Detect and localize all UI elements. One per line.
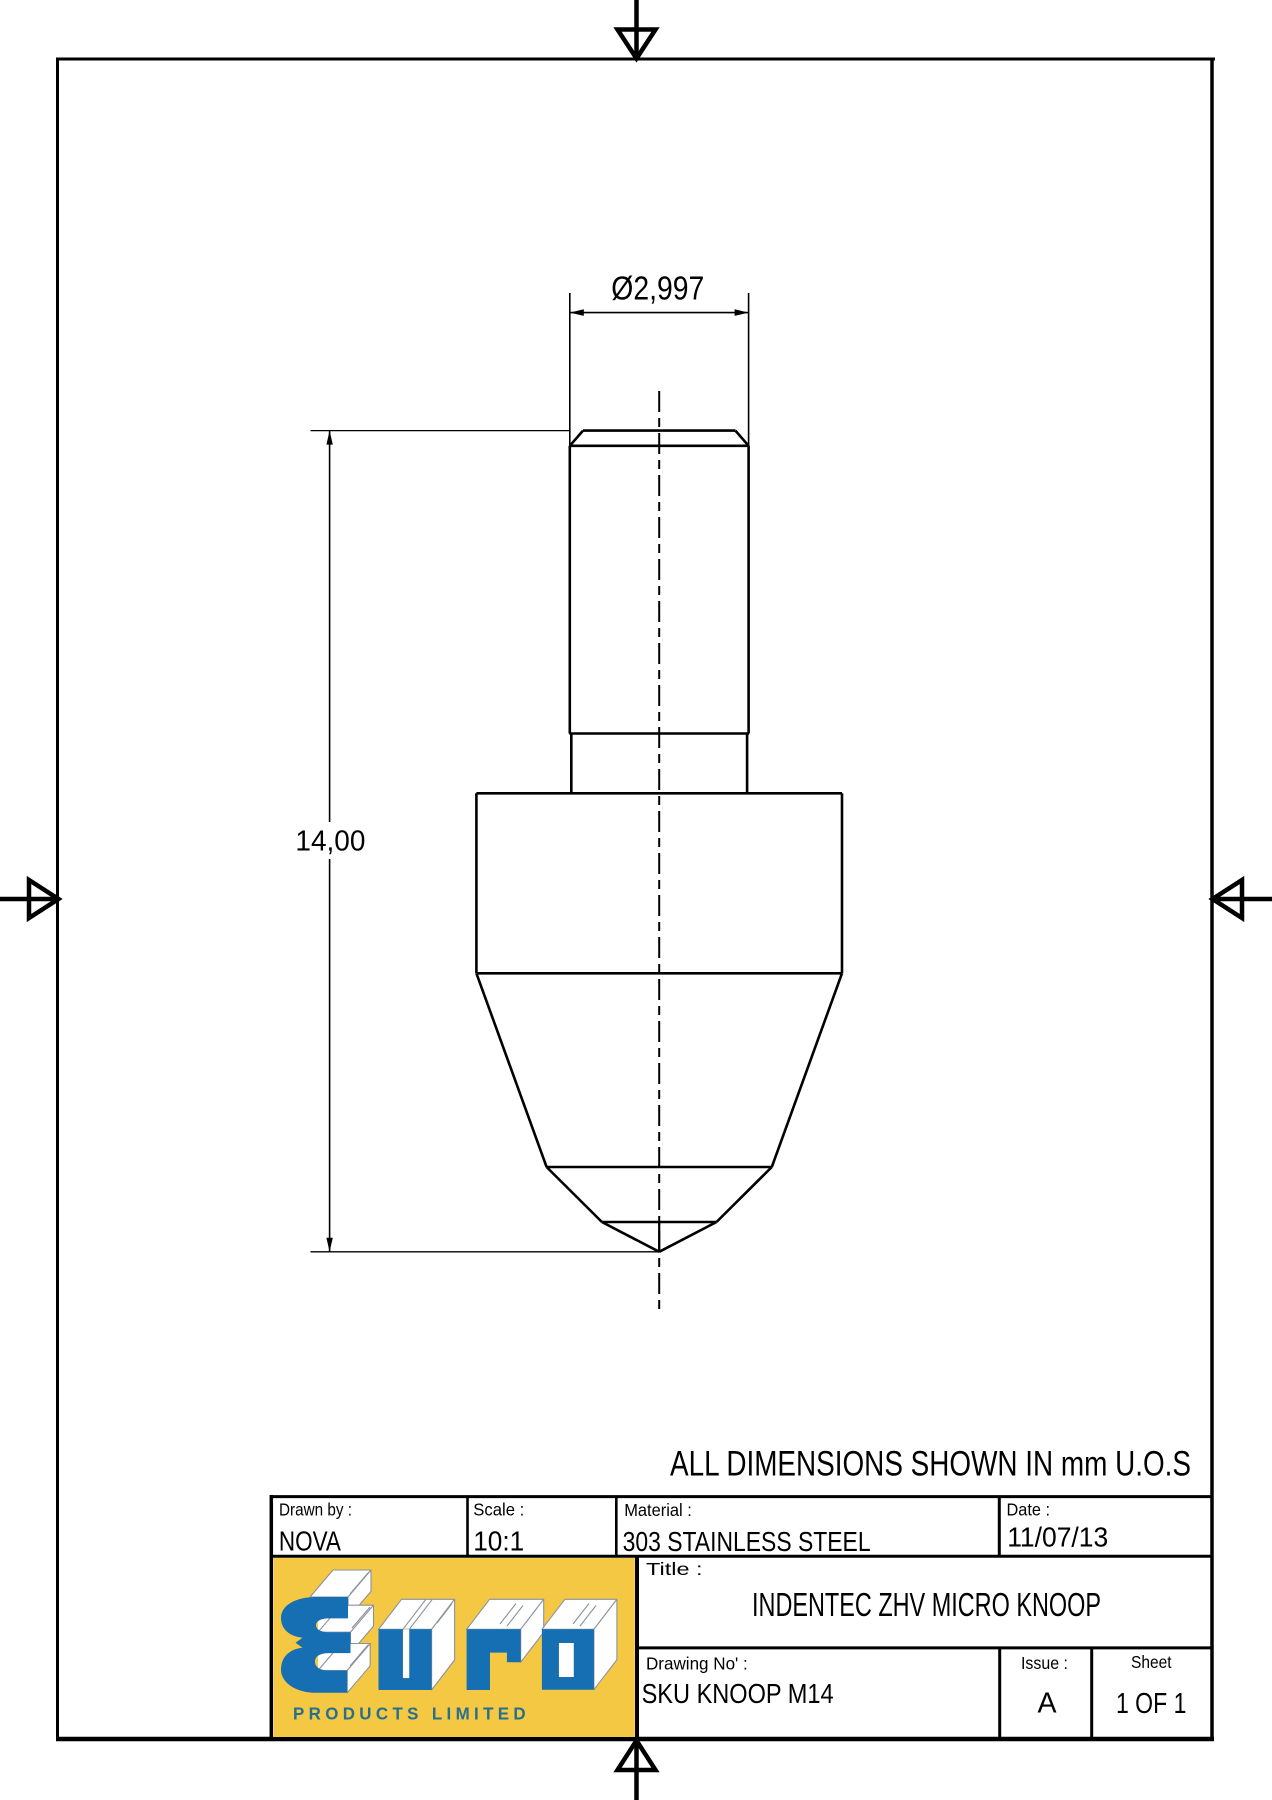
svg-text:INDENTEC ZHV MICRO KNOOP: INDENTEC ZHV MICRO KNOOP bbox=[752, 1586, 1101, 1623]
svg-text:Date :: Date : bbox=[1007, 1500, 1051, 1520]
svg-text:Scale :: Scale : bbox=[473, 1500, 524, 1520]
svg-text:SKU KNOOP M14: SKU KNOOP M14 bbox=[642, 1678, 834, 1709]
svg-text:10:1: 10:1 bbox=[473, 1526, 524, 1557]
svg-text:Material :: Material : bbox=[624, 1500, 692, 1520]
svg-text:Title :: Title : bbox=[646, 1559, 703, 1579]
svg-text:ALL DIMENSIONS SHOWN IN mm U.O: ALL DIMENSIONS SHOWN IN mm U.O.S bbox=[670, 1444, 1191, 1483]
svg-text:Drawing No' :: Drawing No' : bbox=[646, 1654, 748, 1674]
svg-text:A: A bbox=[1037, 1688, 1056, 1720]
svg-text:NOVA: NOVA bbox=[279, 1526, 341, 1557]
svg-text:303 STAINLESS STEEL: 303 STAINLESS STEEL bbox=[623, 1526, 871, 1557]
svg-text:Sheet: Sheet bbox=[1131, 1652, 1172, 1672]
svg-text:1 OF 1: 1 OF 1 bbox=[1116, 1688, 1187, 1720]
svg-text:Ø2,997: Ø2,997 bbox=[611, 269, 704, 306]
svg-text:Issue :: Issue : bbox=[1021, 1653, 1068, 1673]
svg-text:Drawn by :: Drawn by : bbox=[279, 1500, 352, 1520]
svg-text:14,00: 14,00 bbox=[295, 825, 365, 857]
svg-text:11/07/13: 11/07/13 bbox=[1007, 1522, 1108, 1553]
svg-text:PRODUCTS LIMITED: PRODUCTS LIMITED bbox=[293, 1704, 530, 1724]
